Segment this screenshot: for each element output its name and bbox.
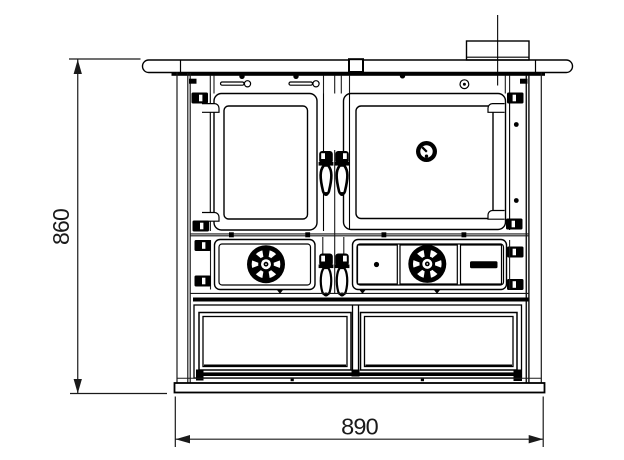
svg-text:890: 890 bbox=[341, 414, 379, 440]
svg-text:860: 860 bbox=[48, 209, 74, 245]
